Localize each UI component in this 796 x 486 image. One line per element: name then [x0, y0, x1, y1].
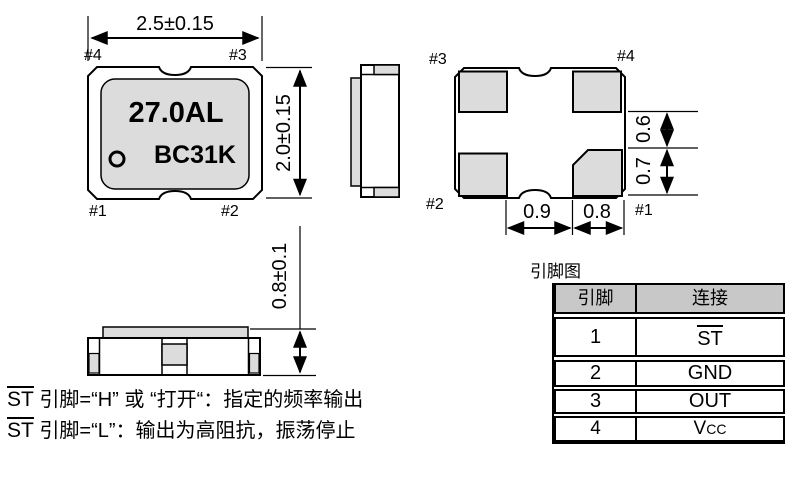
pin-connection: ST	[637, 319, 783, 355]
top-view-pin2-label: #2	[221, 203, 239, 221]
pin-table-row-1: 1 ST	[554, 317, 785, 357]
pin-table-header-connection: 连接	[637, 285, 783, 312]
side-view-small-drawing	[351, 65, 399, 197]
pin-number: 1	[556, 319, 637, 355]
dim-pad-height: 0.7	[633, 151, 655, 191]
pin-number: 2	[556, 362, 637, 385]
pin-number: 3	[556, 391, 637, 412]
pin-table-title: 引脚图	[530, 257, 581, 282]
pin-number: 4	[556, 418, 637, 440]
pin-table-row-2: 2 GND	[554, 360, 785, 387]
top-view-pin3-label: #3	[229, 47, 247, 65]
bottom-view-pin1-label: #1	[635, 202, 653, 220]
pin-table-row-3: 3 OUT	[554, 389, 785, 414]
dim-body-width: 2.5±0.15	[110, 13, 240, 36]
dim-body-height: 2.0±0.15	[273, 68, 295, 198]
pin1-index-circle	[110, 152, 124, 166]
marking-lot-code: BC31K	[138, 141, 252, 170]
oscillator-drawing-page: 2.5±0.15 #4 #3 #1 #2 27.0AL BC31K 2.0±0.…	[0, 0, 796, 486]
bottom-view-pin3-label: #3	[429, 51, 447, 69]
vcc-subscript: CC	[706, 421, 726, 437]
st-overline: ST	[697, 325, 723, 350]
pin-table-header-row: 引脚 连接	[554, 283, 785, 314]
vcc-main: V	[694, 418, 707, 439]
pad-2	[459, 154, 507, 197]
note-st-high-text: 引脚=“H” 或 “打开“：指定的频率输出	[34, 389, 363, 411]
dim-pad-gap-vertical: 0.6	[633, 109, 655, 149]
pin-connection: OUT	[637, 391, 783, 412]
pad-1-chamfered	[573, 150, 622, 196]
pad-4	[573, 72, 621, 113]
top-view-pin1-label: #1	[89, 203, 107, 221]
dim-package-thickness: 0.8±0.1	[269, 221, 291, 331]
dim-pad-width: 0.8	[573, 201, 621, 224]
st-signal-overline: ST	[7, 386, 34, 411]
note-st-high: ST 引脚=“H” 或 “打开“：指定的频率输出	[7, 383, 363, 412]
note-st-low: ST 引脚=“L”：输出为高阻抗，振荡停止	[7, 414, 356, 443]
metal-lid	[103, 327, 248, 338]
pin-table-header-pin: 引脚	[556, 285, 637, 312]
dim-pad-gap-horizontal: 0.9	[512, 201, 562, 224]
pin-table-row-4: 4 VCC	[554, 416, 785, 442]
marking-frequency: 27.0AL	[100, 97, 252, 130]
st-signal-overline: ST	[7, 417, 34, 442]
note-st-low-text: 引脚=“L”：输出为高阻抗，振荡停止	[34, 420, 356, 442]
bottom-view-pin2-label: #2	[426, 196, 444, 214]
top-view-pin4-label: #4	[84, 47, 102, 65]
bottom-view-pin4-label: #4	[617, 48, 635, 66]
pin-connection: GND	[637, 362, 783, 385]
pin-connection: VCC	[637, 418, 783, 440]
pad-3	[459, 72, 507, 113]
pin-table: 引脚 连接 1 ST 2 GND 3 OUT 4 VCC	[552, 283, 785, 444]
